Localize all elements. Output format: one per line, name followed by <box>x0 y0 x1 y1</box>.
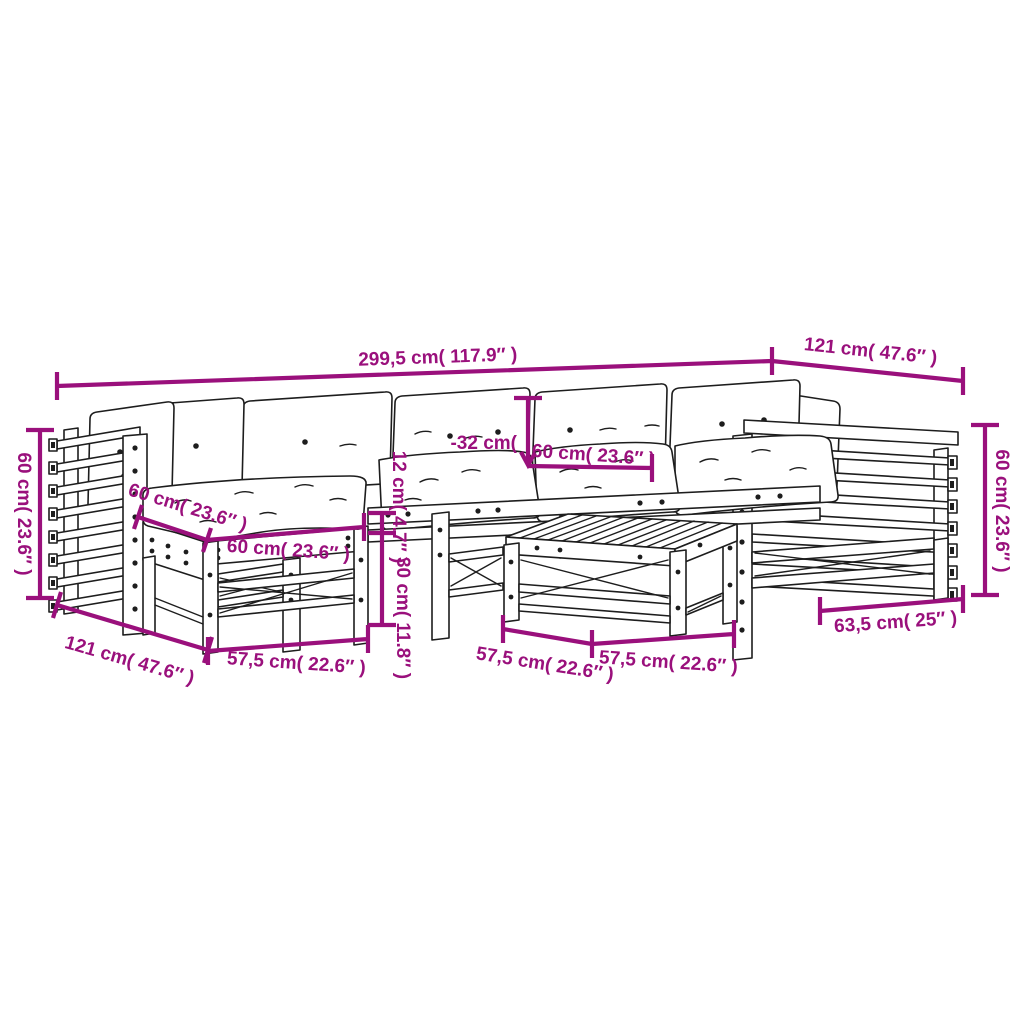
dim-right-module-frame-width: 57,5 cm( 22.6″ ) <box>592 620 738 678</box>
coffee-table <box>504 514 737 636</box>
dim-cushion-thickness-label: 12 cm( 4.7″ ) <box>388 451 409 564</box>
dim-back-cushion-height-label: -32 cm( <box>450 433 517 454</box>
dim-table-frame-width: 57,5 cm( 22.6″ ) <box>475 615 616 686</box>
dim-frame-height-label: 30 cm( 11.8″ ) <box>392 557 413 679</box>
stool-leg-back-left <box>143 556 155 635</box>
dim-left-arm-height-label: 60 cm( 23.6″ ) <box>13 452 34 575</box>
dim-table-top-width-label: 63,5 cm( 25″ ) <box>833 608 957 638</box>
dim-overall-width-label: 299,5 cm( 117.9″ ) <box>358 344 518 371</box>
dim-right-arm-height-label: 60 cm( 23.6″ ) <box>991 449 1012 572</box>
left-arm-panel <box>49 427 147 635</box>
table-leg-front-left <box>504 543 519 622</box>
dim-right-module-frame-width-label: 57,5 cm( 22.6″ ) <box>598 647 738 678</box>
dim-left-arm-height: 60 cm( 23.6″ ) <box>13 430 54 598</box>
diagram-canvas: 299,5 cm( 117.9″ ) 121 cm( 47.6″ ) 60 cm… <box>0 0 1024 1024</box>
furniture-dimension-diagram: 299,5 cm( 117.9″ ) 121 cm( 47.6″ ) 60 cm… <box>0 0 1024 1024</box>
dim-stool-frame-width-label: 57,5 cm( 22.6″ ) <box>226 648 366 679</box>
dim-right-module-depth-label: 121 cm( 47.6″ ) <box>803 334 938 369</box>
table-leg-front-right <box>670 550 686 636</box>
right-rear-bottom-leg <box>934 538 948 600</box>
dim-right-arm-height: 60 cm( 23.6″ ) <box>971 425 1012 595</box>
